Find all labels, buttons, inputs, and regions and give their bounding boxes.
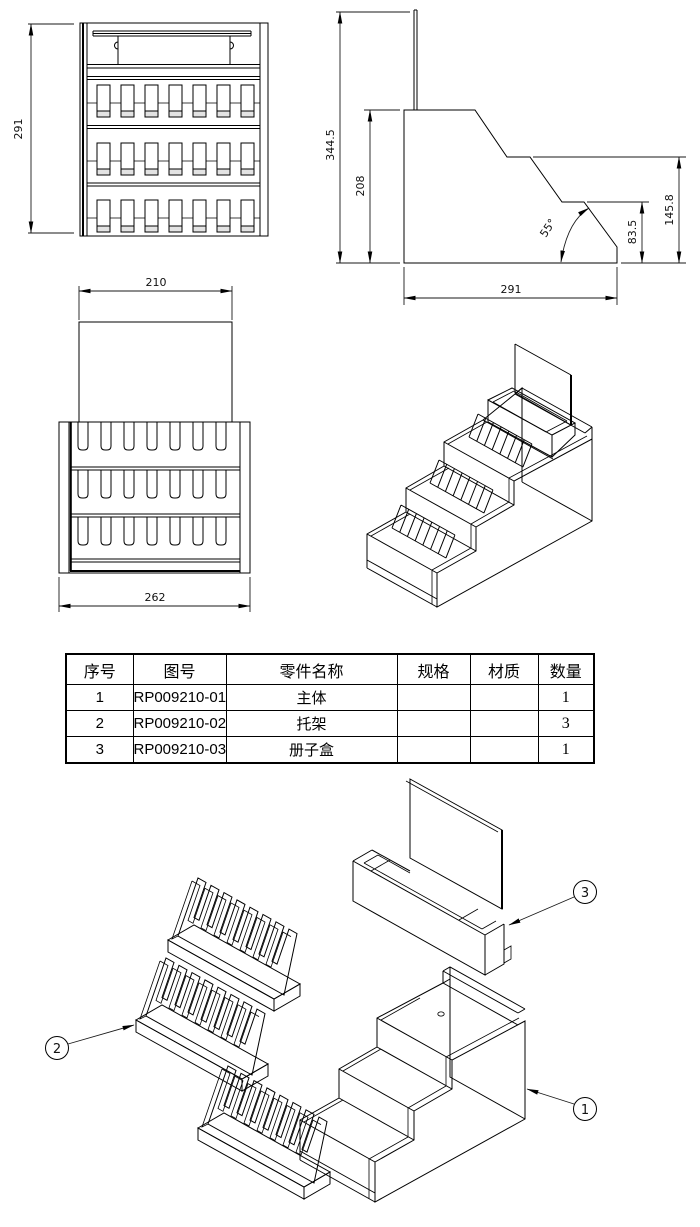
part-tray-top [168, 878, 300, 1011]
part-tray-bottom [198, 1066, 330, 1199]
part-tray-middle [136, 958, 268, 1091]
bom-cell-qty: 3 [538, 711, 594, 737]
bom-cell-no: 2 [66, 711, 133, 737]
dim-total-height: 344.5 [324, 129, 337, 161]
front-view: 291 [12, 23, 268, 236]
dim-upper-step: 145.8 [663, 194, 676, 226]
bom-row-1: 1 RP009210-01 主体 1 [66, 685, 594, 711]
isometric-view [367, 344, 592, 607]
bom-header-spec: 规格 [397, 654, 470, 685]
bom-table: 序号 图号 零件名称 规格 材质 数量 1 RP009210-01 主体 1 2… [65, 653, 595, 764]
drawing-sheet: 291 344.5 208 145.8 83.5 55° 291 [0, 0, 700, 1227]
exploded-view: 1 2 3 [46, 779, 597, 1202]
balloon-3-number: 3 [581, 886, 589, 901]
part-booklet-box [353, 779, 511, 975]
bom-header-qty: 数量 [538, 654, 594, 685]
bom-cell-drawing-no: RP009210-01 [133, 685, 226, 711]
dim-depth: 291 [501, 283, 522, 296]
bom-cell-part-name: 册子盒 [226, 737, 397, 764]
top-view: 210 262 [59, 276, 250, 612]
bom-cell-qty: 1 [538, 685, 594, 711]
front-height-dimension: 291 [12, 24, 74, 233]
dim-angle: 55° [537, 216, 559, 239]
bom-header-no: 序号 [66, 654, 133, 685]
bom-cell-part-name: 主体 [226, 685, 397, 711]
balloon-3: 3 [509, 881, 597, 926]
side-view: 344.5 208 145.8 83.5 55° 291 [324, 10, 686, 305]
balloon-1-number: 1 [581, 1103, 589, 1118]
bom-cell-part-name: 托架 [226, 711, 397, 737]
bom-row-2: 2 RP009210-02 托架 3 [66, 711, 594, 737]
bom-cell-material [470, 685, 538, 711]
bom-cell-spec [397, 737, 470, 764]
bom-header-row: 序号 图号 零件名称 规格 材质 数量 [66, 654, 594, 685]
bom-row-3: 3 RP009210-03 册子盒 1 [66, 737, 594, 764]
bom-header-part-name: 零件名称 [226, 654, 397, 685]
bom-cell-material [470, 737, 538, 764]
cad-drawing-page: 291 344.5 208 145.8 83.5 55° 291 [0, 0, 700, 1227]
part-main-body [300, 967, 525, 1202]
dim-lower-step: 83.5 [626, 220, 639, 245]
dim-body-width: 262 [145, 591, 166, 604]
bom-cell-drawing-no: RP009210-02 [133, 711, 226, 737]
dim-body-height: 208 [354, 176, 367, 197]
bom-header-drawing-no: 图号 [133, 654, 226, 685]
bom-cell-no: 1 [66, 685, 133, 711]
balloon-1: 1 [527, 1089, 597, 1121]
balloon-2-number: 2 [53, 1042, 61, 1057]
bom-cell-drawing-no: RP009210-03 [133, 737, 226, 764]
bom-cell-material [470, 711, 538, 737]
bom-cell-no: 3 [66, 737, 133, 764]
bom-cell-spec [397, 685, 470, 711]
bom-cell-qty: 1 [538, 737, 594, 764]
balloon-2: 2 [46, 1025, 135, 1060]
dim-back-panel-width: 210 [146, 276, 167, 289]
bom-cell-spec [397, 711, 470, 737]
bom-header-material: 材质 [470, 654, 538, 685]
dim-front-height: 291 [12, 119, 25, 140]
